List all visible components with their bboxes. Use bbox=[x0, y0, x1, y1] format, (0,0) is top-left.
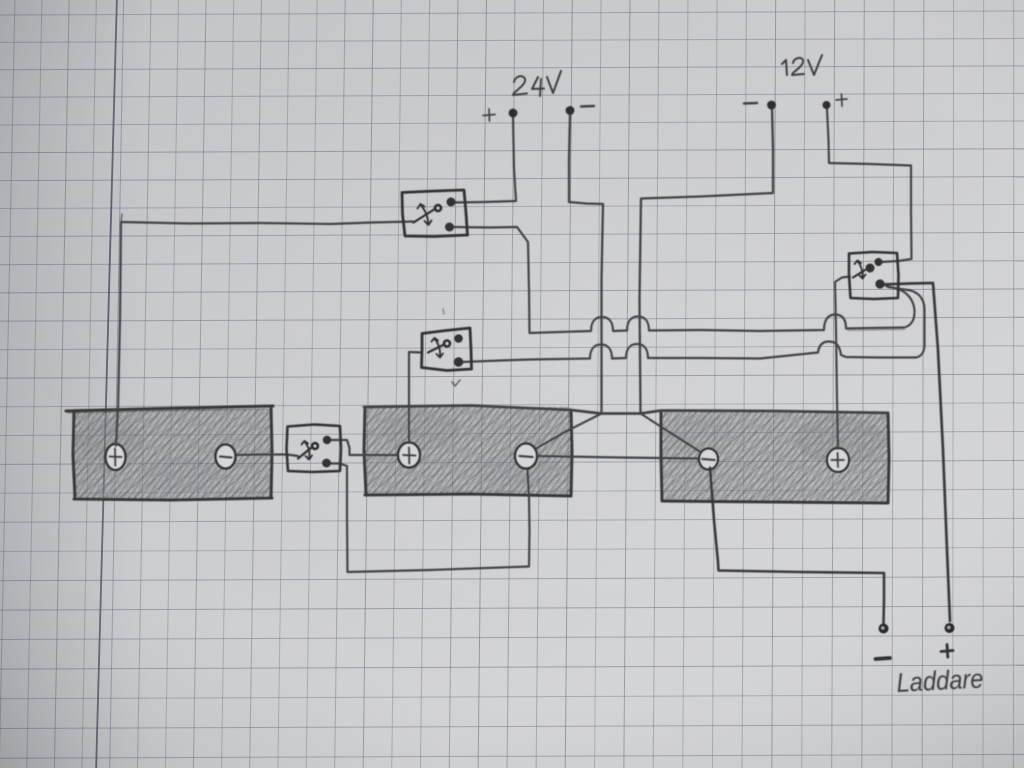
svg-text:Laddare: Laddare bbox=[896, 663, 984, 698]
